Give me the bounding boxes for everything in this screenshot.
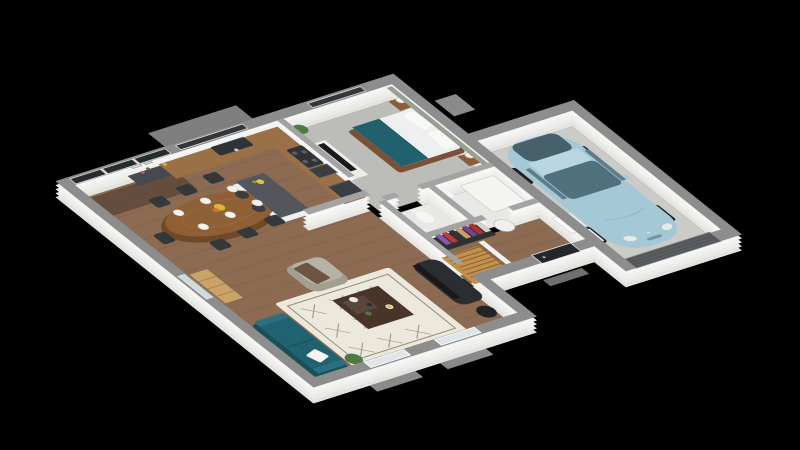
floor-plan-svg — [0, 0, 800, 450]
floor-plan-render — [0, 0, 800, 450]
